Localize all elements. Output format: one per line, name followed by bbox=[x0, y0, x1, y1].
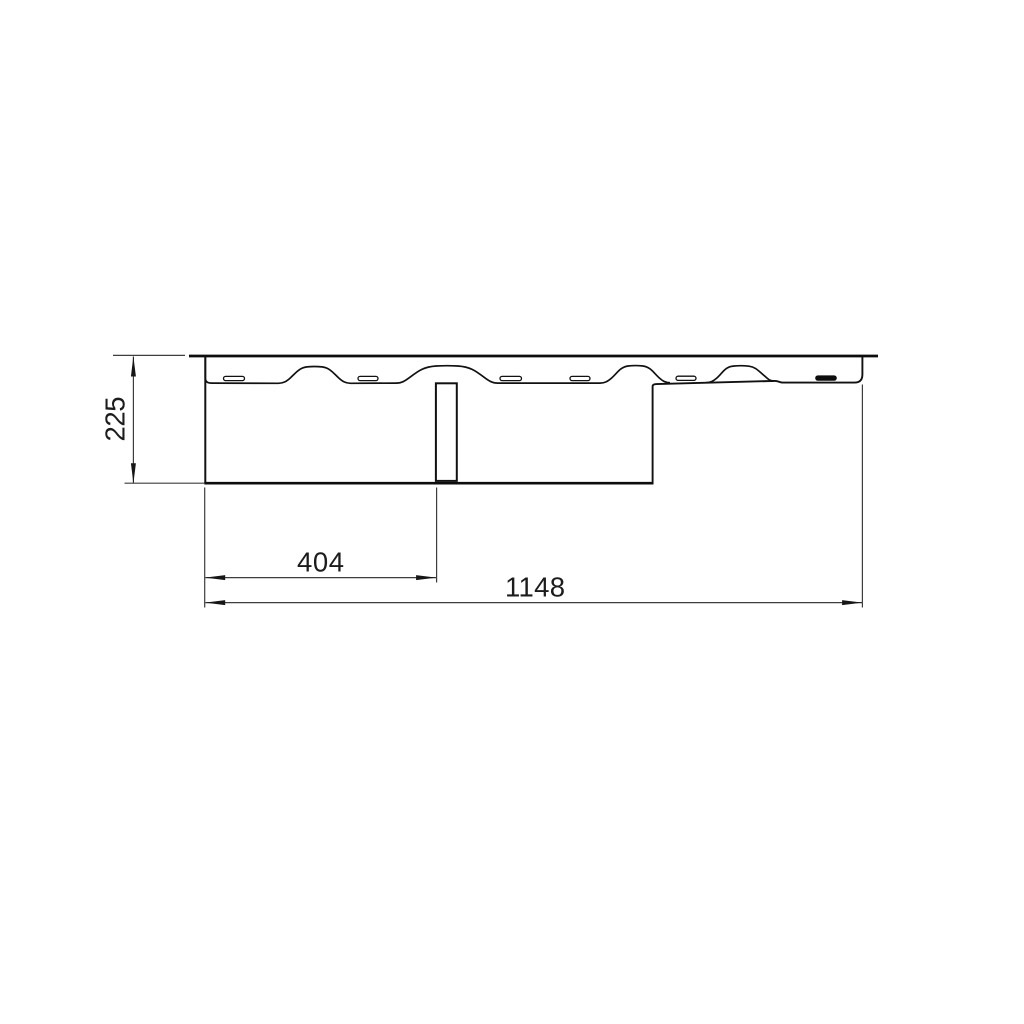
svg-text:404: 404 bbox=[297, 547, 344, 578]
svg-text:225: 225 bbox=[100, 397, 131, 442]
svg-text:1148: 1148 bbox=[505, 572, 565, 603]
